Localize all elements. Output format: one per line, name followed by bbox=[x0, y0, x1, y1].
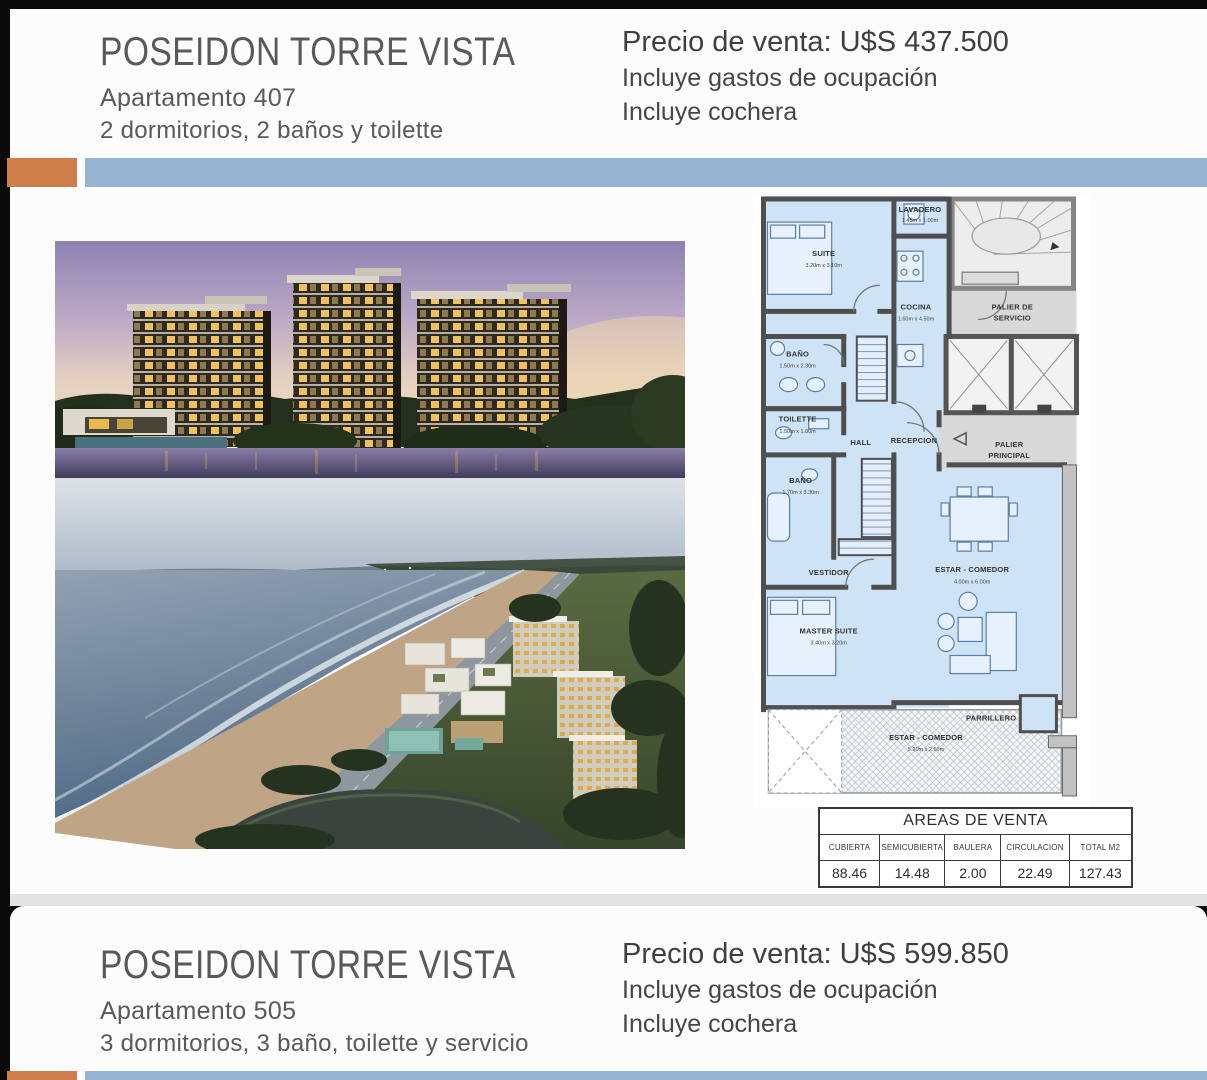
sale-price-2: Precio de venta: U$S 599.850 bbox=[622, 938, 1009, 971]
room-label-cocina: COCINA bbox=[901, 302, 932, 311]
page-title-2: POSEIDON TORRE VISTA bbox=[100, 943, 515, 988]
apartment-features-2: 3 dormitorios, 3 baño, toilette y servic… bbox=[100, 1030, 529, 1058]
room-label-terraza: ESTAR - COMEDOR bbox=[889, 733, 963, 742]
room-label-parrillero: PARRILLERO bbox=[966, 714, 1016, 723]
floor-plan-drawing: SUITE 3.20m x 3.10m LAVADERO 1.45m x 1.0… bbox=[753, 196, 1090, 808]
room-label-estar-comedor: ESTAR - COMEDOR bbox=[935, 565, 1009, 574]
note-garage: Incluye cochera bbox=[622, 98, 797, 127]
room-dims-bano1: 1.50m x 2.30m bbox=[779, 364, 816, 370]
note-occupation-2: Incluye gastos de ocupación bbox=[622, 976, 938, 1005]
room-label-palier-servicio-1: PALIER DE bbox=[992, 302, 1033, 311]
room-label-palier-servicio-2: SERVICIO bbox=[994, 313, 1031, 322]
room-dims-bano2: 1.70m x 3.30m bbox=[782, 490, 819, 496]
room-label-vestidor: VESTIDOR bbox=[809, 568, 849, 577]
areas-table-values-row: 88.46 14.48 2.00 22.49 127.43 bbox=[820, 860, 1131, 886]
areas-header-cubierta: CUBIERTA bbox=[820, 835, 879, 860]
room-label-bano2: BAÑO bbox=[789, 476, 812, 485]
page-title: POSEIDON TORRE VISTA bbox=[100, 30, 515, 75]
building-render-photo bbox=[55, 241, 685, 478]
areas-header-baulera: BAULERA bbox=[944, 835, 1000, 860]
room-dims-cocina: 1.60m x 4.50m bbox=[898, 316, 935, 322]
room-label-palier-principal-1: PALIER bbox=[995, 440, 1024, 449]
aerial-coastline-photo bbox=[55, 478, 685, 849]
areas-value-semicubierta: 14.48 bbox=[879, 860, 944, 886]
slide-divider bbox=[10, 894, 1207, 906]
areas-value-baulera: 2.00 bbox=[944, 860, 1000, 886]
accent-bar-orange bbox=[7, 158, 77, 187]
apartment-number-2: Apartamento 505 bbox=[100, 997, 296, 1026]
accent-bar-orange-2 bbox=[7, 1071, 77, 1080]
areas-header-total: TOTAL M2 bbox=[1069, 835, 1131, 860]
room-dims-lavadero: 1.45m x 1.00m bbox=[902, 218, 939, 224]
palier-servicio-area bbox=[949, 288, 1076, 336]
areas-de-venta-table: AREAS DE VENTA CUBIERTA SEMICUBIERTA BAU… bbox=[818, 807, 1133, 888]
apartment-number: Apartamento 407 bbox=[100, 84, 296, 113]
accent-bar-blue-2 bbox=[85, 1071, 1207, 1080]
note-garage-2: Incluye cochera bbox=[622, 1010, 797, 1039]
areas-header-circulacion: CIRCULACION bbox=[1000, 835, 1068, 860]
areas-value-circulacion: 22.49 bbox=[1000, 860, 1068, 886]
sale-price: Precio de venta: U$S 437.500 bbox=[622, 26, 1009, 59]
service-stairs bbox=[952, 199, 1073, 288]
floor-plan: SUITE 3.20m x 3.10m LAVADERO 1.45m x 1.0… bbox=[753, 196, 1090, 813]
document-page: POSEIDON TORRE VISTA Apartamento 407 2 d… bbox=[0, 0, 1207, 1080]
elevators bbox=[946, 336, 1076, 412]
accent-bar-blue bbox=[85, 158, 1207, 187]
room-dims-terraza: 5.20m x 2.50m bbox=[908, 747, 945, 753]
building-render-illustration bbox=[55, 241, 685, 478]
room-dims-toilette: 1.50m x 1.00m bbox=[779, 429, 816, 435]
areas-header-semicubierta: SEMICUBIERTA bbox=[879, 835, 944, 860]
areas-table-title: AREAS DE VENTA bbox=[820, 809, 1131, 835]
room-label-toilette: TOILETTE bbox=[779, 415, 817, 424]
areas-value-total: 127.43 bbox=[1069, 860, 1131, 886]
room-dims-master-suite: 3.40m x 3.20m bbox=[811, 640, 848, 646]
room-label-hall: HALL bbox=[850, 438, 871, 447]
parrillero-box bbox=[1020, 696, 1056, 732]
areas-value-cubierta: 88.46 bbox=[820, 860, 879, 886]
aerial-coastline-illustration bbox=[55, 478, 685, 849]
room-dims-suite: 3.20m x 3.10m bbox=[805, 263, 842, 269]
room-label-recepcion: RECEPCION bbox=[891, 436, 938, 445]
apartment-features: 2 dormitorios, 2 baños y toilette bbox=[100, 117, 443, 145]
room-dims-estar-comedor: 4.00m x 6.00m bbox=[954, 579, 991, 585]
areas-table-header-row: CUBIERTA SEMICUBIERTA BAULERA CIRCULACIO… bbox=[820, 835, 1131, 860]
room-label-palier-principal-2: PRINCIPAL bbox=[988, 451, 1030, 460]
room-label-bano1: BAÑO bbox=[786, 350, 809, 359]
room-label-master-suite: MASTER SUITE bbox=[800, 626, 858, 635]
note-occupation: Incluye gastos de ocupación bbox=[622, 64, 938, 93]
room-label-lavadero: LAVADERO bbox=[899, 205, 942, 214]
room-label-suite: SUITE bbox=[812, 249, 835, 258]
